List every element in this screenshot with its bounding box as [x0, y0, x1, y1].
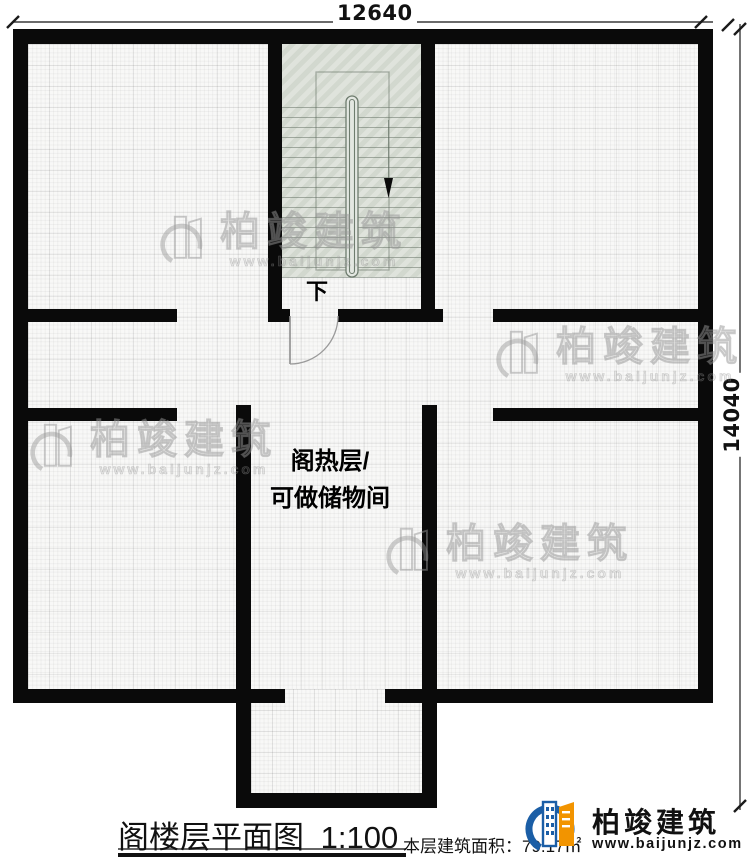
floor-area-label: 本层建筑面积：: [403, 837, 522, 856]
dimension-right-label: 14040: [720, 373, 744, 457]
storage-room-label: 阁热层/ 可做储物间: [230, 443, 430, 517]
storage-room-label-line1: 阁热层/: [230, 443, 430, 480]
plan-scale: 1:100: [321, 820, 399, 855]
storage-room-label-line2: 可做储物间: [230, 480, 430, 517]
linework-overlay: [0, 0, 750, 863]
company-logo-url: www.baijunjz.com: [592, 836, 743, 852]
floor-plan-page: 12640 14040 下 阁热层/ 可做储物间 柏竣建筑 www.baijun…: [0, 0, 750, 863]
stair-down-label: 下: [306, 274, 328, 306]
company-logo-icon: [524, 797, 586, 855]
plan-title-text: 阁楼层平面图: [118, 820, 304, 855]
stair-direction-arrow-icon: [384, 178, 393, 198]
company-logo-brand: 柏竣建筑: [592, 801, 720, 841]
plan-title: 阁楼层平面图 1:100: [118, 812, 398, 857]
door-swing-arc: [290, 316, 338, 364]
dimension-top-label: 12640: [333, 1, 417, 25]
